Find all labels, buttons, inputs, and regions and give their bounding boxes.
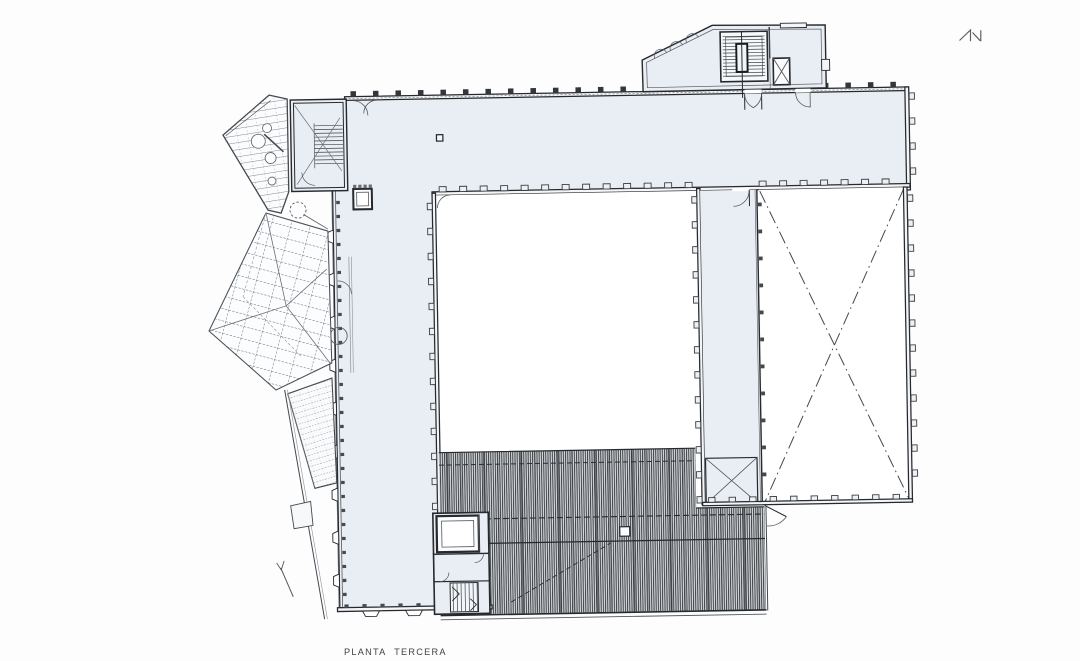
svg-text:PLANTA TERCERA: PLANTA TERCERA: [344, 647, 447, 657]
